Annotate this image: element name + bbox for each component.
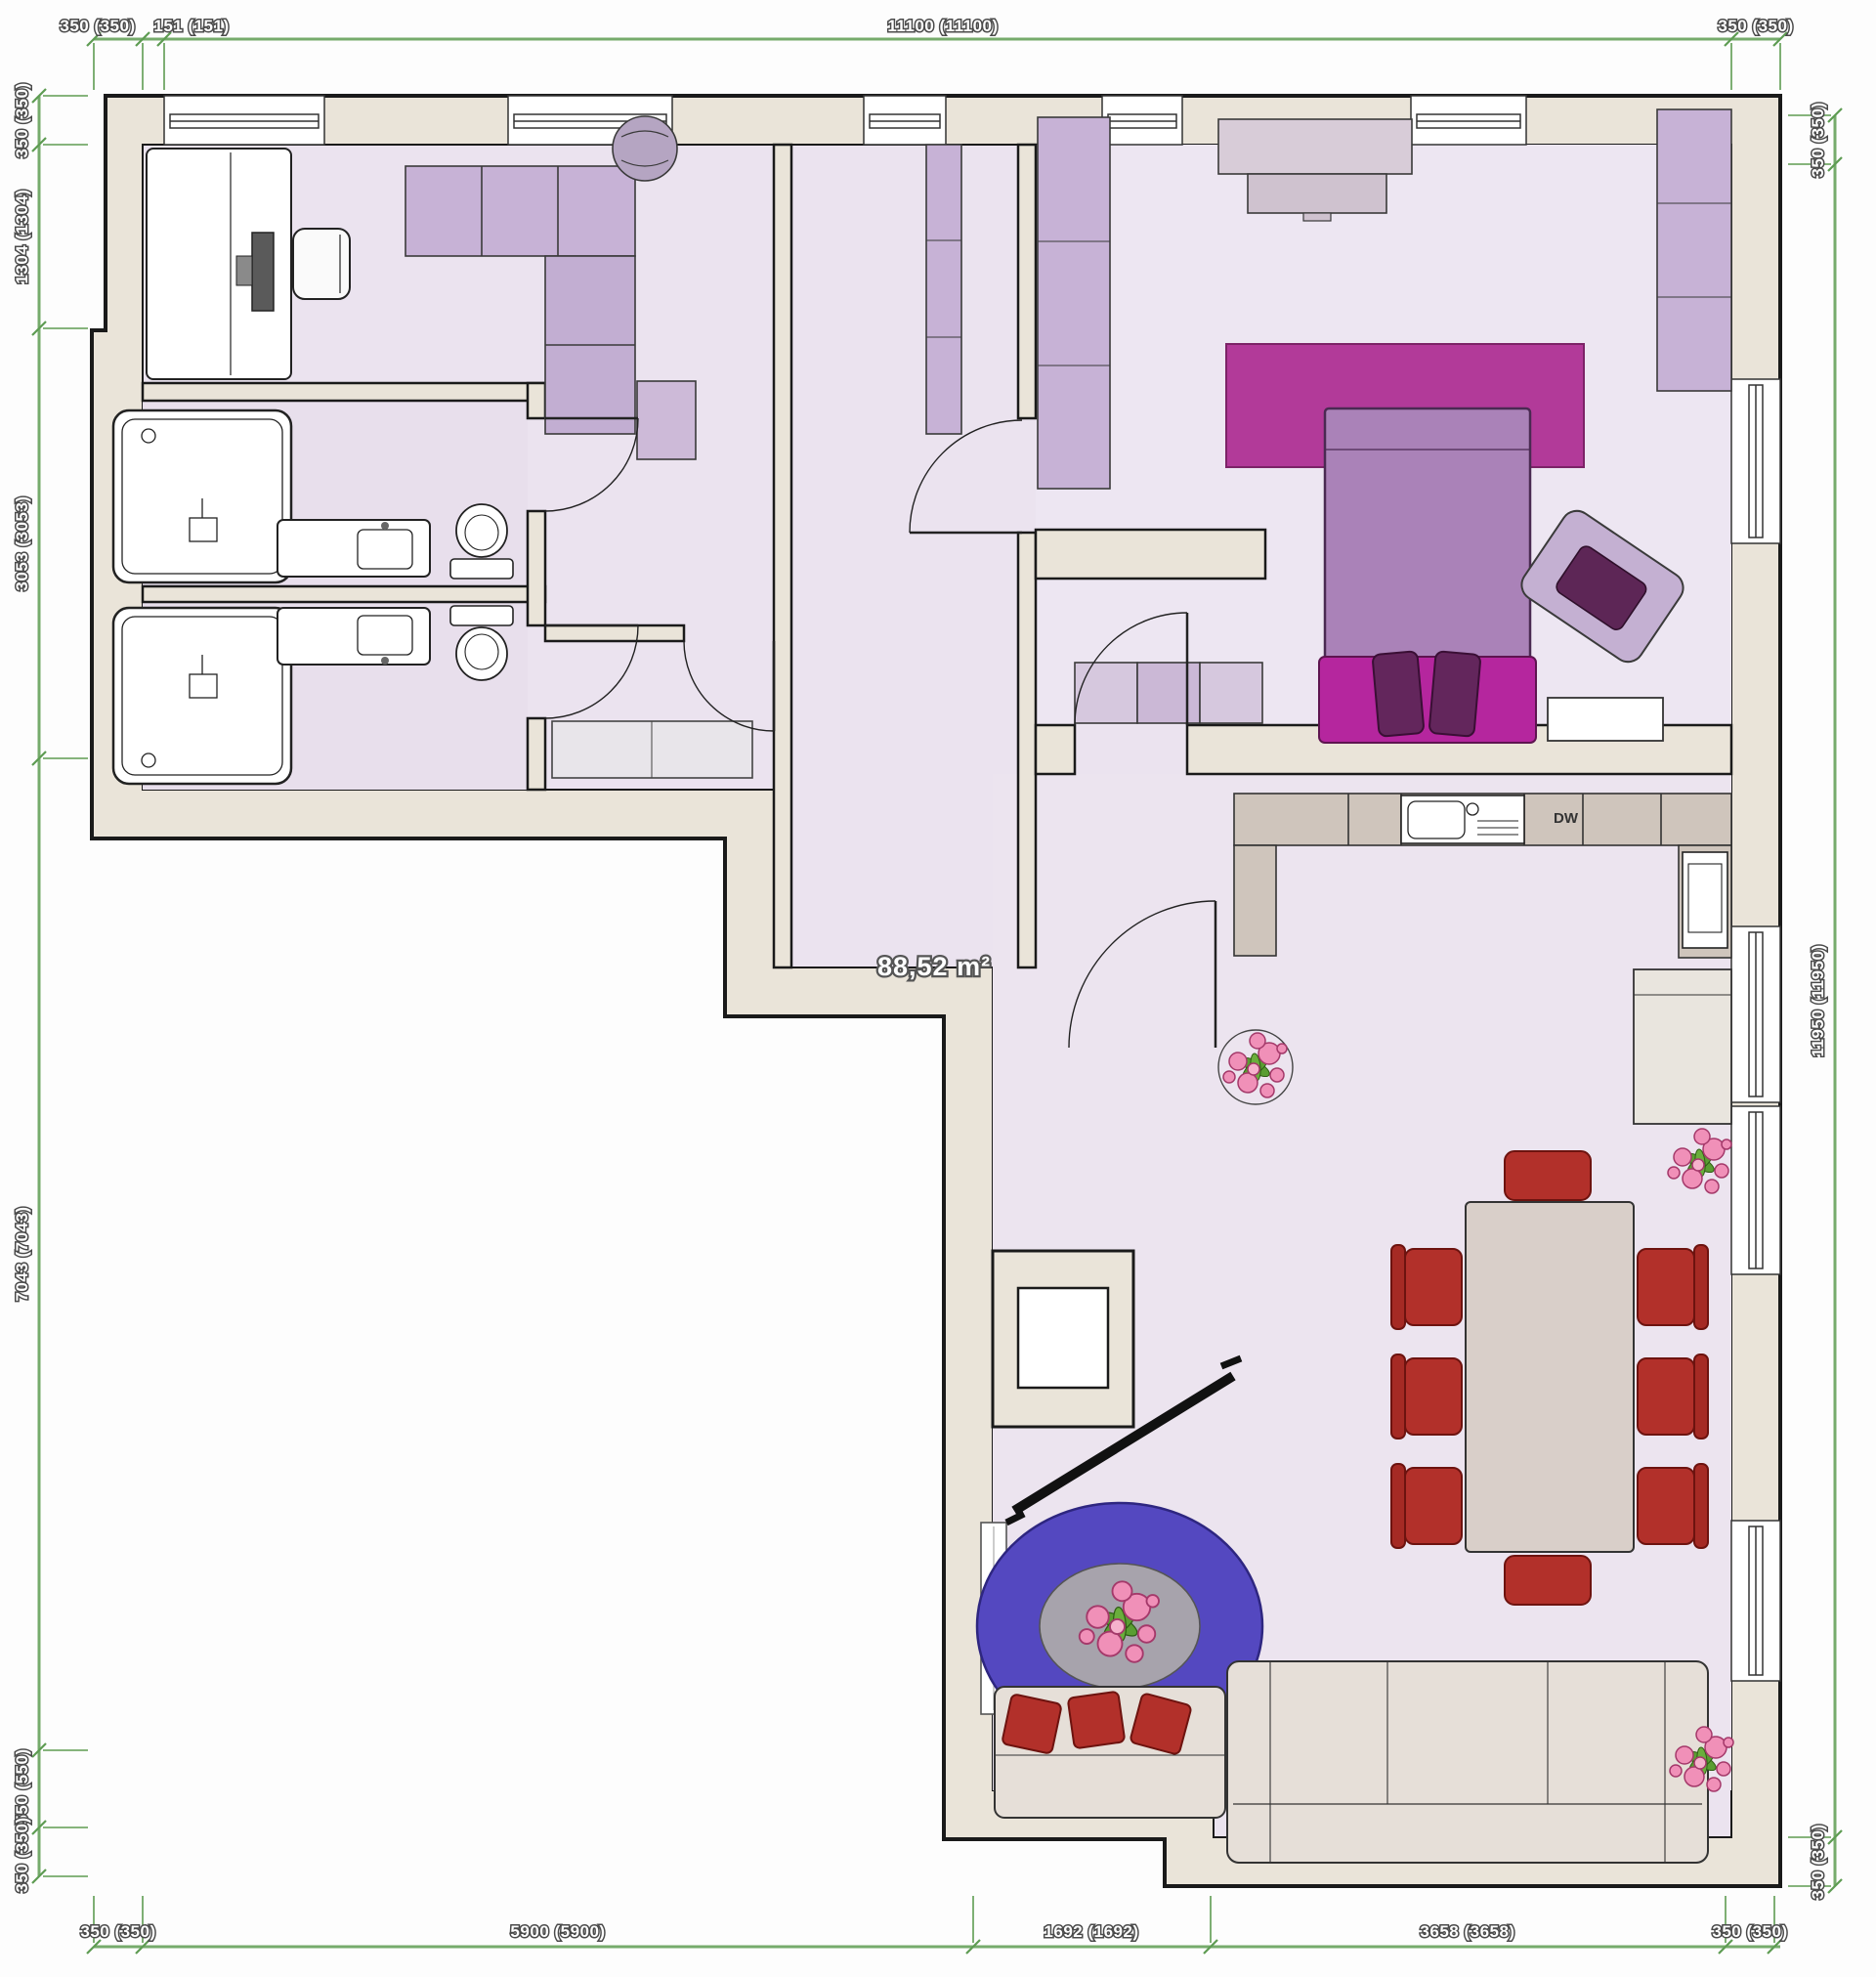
office-desk[interactable] (147, 149, 291, 379)
dim-bottom-3: 1692 (1692) (1044, 1922, 1138, 1941)
window-right-3[interactable] (1731, 1106, 1780, 1274)
window-top-5[interactable] (1411, 96, 1526, 145)
fridge-cabinet[interactable] (1634, 969, 1731, 1124)
dim-right-1: 350 (350) (1809, 102, 1827, 177)
window-top-3[interactable] (864, 96, 946, 145)
floor-plan-canvas: DW (0, 0, 1876, 1977)
dining-chairs-left[interactable] (1391, 1245, 1462, 1548)
tub-drain-icon (142, 429, 155, 443)
faucet-icon (381, 522, 389, 530)
dim-left-2: 1304 (1304) (13, 189, 31, 283)
dim-left-5: 550 (550) (13, 1748, 31, 1824)
bed[interactable] (1319, 408, 1536, 743)
sink-faucet-icon (1467, 803, 1478, 815)
kitchen-sink[interactable] (1401, 795, 1524, 843)
nightstand[interactable] (1548, 698, 1663, 741)
bed-headboard (1319, 657, 1536, 743)
dim-top-4: 350 (350) (1718, 17, 1793, 35)
oven[interactable] (1683, 852, 1727, 948)
duct-shaft (993, 1251, 1133, 1427)
dishwasher-label: DW (1554, 810, 1579, 827)
dim-left-6: 350 (350) (13, 1817, 31, 1892)
bedroom-dresser[interactable] (1218, 119, 1412, 221)
tub-drain-icon (142, 753, 155, 767)
dim-top-1: 350 (350) (60, 17, 135, 35)
dining-stool-bottom[interactable] (1505, 1556, 1591, 1605)
window-top-1[interactable] (164, 96, 324, 145)
dining-chairs-right[interactable] (1638, 1245, 1708, 1548)
window-right-2[interactable] (1731, 926, 1780, 1102)
dim-bottom-1: 350 (350) (80, 1922, 155, 1941)
sofa-pillow (1068, 1692, 1126, 1749)
bedroom-wardrobe-left[interactable] (1038, 117, 1110, 489)
dim-right-2: 11950 (11950) (1809, 944, 1827, 1056)
floor-plan-svg: DW (0, 0, 1876, 1977)
monitor (252, 233, 274, 311)
dim-left-3: 3053 (3053) (13, 495, 31, 590)
dim-bottom-2: 5900 (5900) (510, 1922, 605, 1941)
dim-bottom-4: 3658 (3658) (1420, 1922, 1514, 1941)
bed-pillow (1428, 651, 1480, 737)
pouf[interactable] (613, 116, 677, 181)
sofa-pillow (1002, 1694, 1062, 1754)
bathtub-1[interactable] (113, 410, 291, 582)
vanity-sink-2[interactable] (277, 608, 430, 665)
tub-faucet-icon (190, 674, 217, 698)
sofa-small[interactable] (995, 1687, 1225, 1818)
dim-left-1: 350 (350) (13, 82, 31, 157)
bedroom-wardrobe-right[interactable] (1657, 109, 1731, 391)
office-chair[interactable] (293, 229, 350, 299)
sofa-main[interactable] (1227, 1661, 1708, 1863)
dim-right-3: 350 (350) (1809, 1824, 1827, 1899)
window-right-4[interactable] (1731, 1521, 1780, 1681)
tub-faucet-icon (190, 518, 217, 541)
dim-top-3: 11100 (11100) (887, 17, 998, 35)
dining-table[interactable] (1466, 1151, 1634, 1605)
vanity-sink-1[interactable] (277, 520, 430, 577)
dim-top-2: 151 (151) (153, 17, 229, 35)
monitor-stand (236, 256, 252, 285)
dim-bottom-5: 350 (350) (1712, 1922, 1787, 1941)
dim-left-4: 7043 (7043) (13, 1206, 31, 1301)
area-label: 88,52 m² (877, 952, 991, 981)
dining-stool-top[interactable] (1505, 1151, 1591, 1200)
hall-cabinet[interactable] (926, 145, 961, 434)
faucet-icon (381, 657, 389, 665)
window-right-1[interactable] (1731, 379, 1780, 543)
bed-pillow (1372, 651, 1424, 737)
bedroom-bench-cabinets[interactable] (1075, 663, 1262, 723)
bathtub-2[interactable] (113, 608, 291, 784)
window-top-4[interactable] (1102, 96, 1182, 145)
